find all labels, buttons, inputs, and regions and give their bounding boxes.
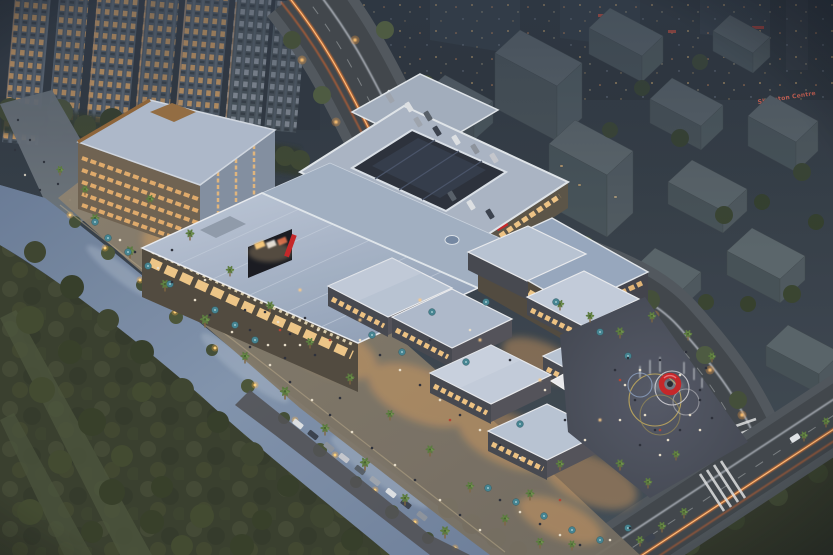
vignette — [0, 0, 833, 555]
aerial-render: Sheraton Centre — [0, 0, 833, 555]
